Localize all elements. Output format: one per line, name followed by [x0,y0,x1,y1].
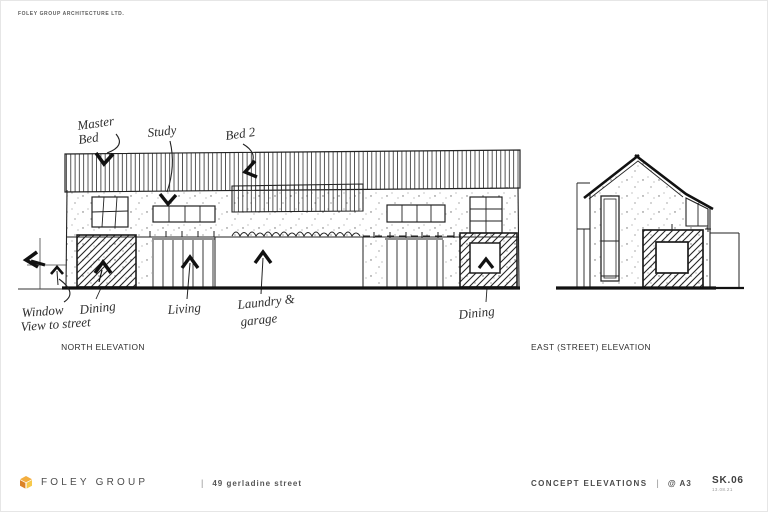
north-elevation-caption: NORTH ELEVATION [61,342,145,352]
footer-brand: FOLEY GROUP [19,476,148,489]
label-dining-right: Dining [457,303,496,322]
dining-left-leader [96,288,101,299]
footer-project: | 49 gerladine street [201,478,302,488]
label-dining-left: Dining [78,298,117,317]
foley-logo-icon [19,476,33,489]
screen-bay [384,238,444,287]
east-annex [577,183,590,287]
east-tall-window [601,196,619,281]
label-study: Study [147,122,178,140]
north-elevation [18,134,520,302]
dining-right-leader [486,288,487,302]
label-master-bed-line2: Bed [77,129,100,147]
footer-sheet-number: SK.06 13.08.21 [712,475,744,492]
window-view-annotation [26,238,70,302]
footer-divider: | [201,478,203,488]
sheet-number: SK.06 [712,475,744,486]
project-address: 49 gerladine street [212,479,302,488]
north-roof-band-lower [232,184,363,212]
study-strip-window [153,206,215,222]
east-fence [710,233,739,287]
master-bed-window [92,197,128,227]
revision-date: 13.08.21 [712,487,744,492]
elevations-drawing: Master Bed Study Bed 2 Window View to st… [0,0,768,462]
east-dining-window [643,224,711,288]
bed2-strip-window [387,205,445,222]
footer-divider-2: | [656,478,658,488]
east-elevation-caption: EAST (STREET) ELEVATION [531,342,651,352]
drawing-sheet: FOLEY GROUP ARCHITECTURE LTD. [0,0,768,512]
label-living: Living [166,300,202,317]
label-laundry-line2: garage [240,310,278,329]
east-elevation [556,155,744,288]
garage-opening [215,238,363,287]
upper-right-window [470,197,502,233]
living-bay [152,238,215,287]
logo-text: FOLEY GROUP [41,477,148,488]
paper-size: @ A3 [668,479,692,488]
dining-window-left [77,235,136,287]
label-bed-2: Bed 2 [224,124,256,143]
drawing-title: CONCEPT ELEVATIONS [531,479,647,488]
footer-drawing-title: CONCEPT ELEVATIONS | @ A3 [531,478,692,488]
dining-window-right [460,233,517,287]
label-laundry-line1: Laundry & [236,291,297,312]
